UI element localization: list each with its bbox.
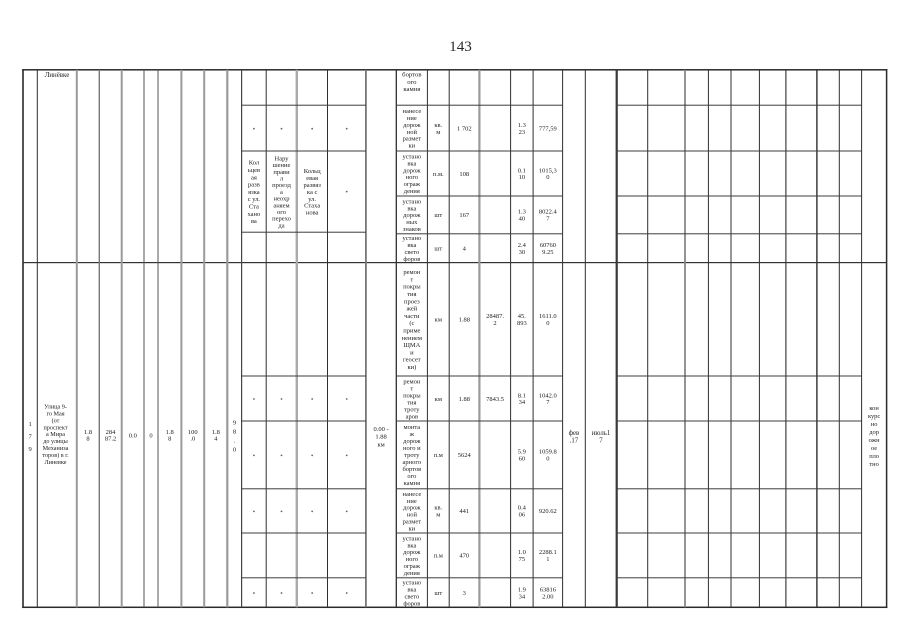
svg-text:4: 4 — [463, 245, 467, 252]
svg-text:108: 108 — [459, 171, 469, 178]
svg-text:0.406: 0.406 — [518, 505, 527, 519]
svg-text:470: 470 — [459, 553, 469, 560]
svg-text:1.340: 1.340 — [518, 209, 526, 223]
svg-text:установкадорожногоограждения: установкадорожногоограждения — [403, 535, 422, 577]
svg-text:ремонтпокрытиятротуаров: ремонтпокрытиятротуаров — [403, 378, 421, 420]
svg-text:28487.2: 28487.2 — [105, 429, 116, 443]
svg-text:0.0: 0.0 — [129, 432, 137, 439]
svg-text:шт: шт — [434, 212, 442, 219]
svg-text:45.893: 45.893 — [517, 313, 527, 327]
svg-text:7843.5: 7843.5 — [486, 396, 504, 403]
svg-text:Кольцеваяразвязкас ул.Стаханов: Кольцеваяразвязкас ул.Стаханова — [248, 160, 261, 225]
svg-text:Нарушениеправилпроезданеохраня: Нарушениеправилпроезданеохраняемогоперех… — [272, 155, 291, 229]
svg-text:1042.07: 1042.07 — [539, 392, 557, 406]
svg-text:шт: шт — [434, 590, 442, 597]
svg-text:8.134: 8.134 — [518, 392, 526, 406]
svg-text:0.110: 0.110 — [518, 167, 526, 181]
svg-text:км: км — [435, 317, 442, 324]
svg-text:1015,30: 1015,30 — [539, 167, 557, 181]
svg-text:установкасветофоров: установкасветофоров — [403, 235, 422, 263]
svg-text:Линёвке: Линёвке — [45, 72, 70, 79]
svg-text:кв.м: кв.м — [434, 505, 442, 519]
svg-text:2288.11: 2288.11 — [539, 549, 557, 563]
svg-text:1.075: 1.075 — [518, 549, 526, 563]
svg-text:1059.80: 1059.80 — [539, 449, 557, 463]
svg-text:шт: шт — [434, 245, 442, 252]
svg-text:143: 143 — [449, 38, 472, 55]
svg-text:км: км — [435, 396, 442, 403]
svg-text:179: 179 — [29, 421, 33, 453]
svg-text:установкадорожныхзнаков: установкадорожныхзнаков — [403, 198, 422, 233]
svg-text:167: 167 — [459, 212, 470, 219]
svg-text:1611.00: 1611.00 — [539, 313, 557, 327]
svg-text:1.88: 1.88 — [166, 429, 174, 443]
svg-text:777,59: 777,59 — [539, 125, 557, 132]
svg-text:1.88: 1.88 — [459, 317, 470, 324]
svg-text:июль17: июль17 — [592, 430, 610, 445]
svg-text:1 702: 1 702 — [457, 125, 472, 132]
svg-text:нанесениедорожнойразметки: нанесениедорожнойразметки — [402, 491, 421, 532]
svg-text:конкурснодорожноеплотно: конкурснодорожноеплотно — [868, 405, 880, 468]
svg-text:кв.м: кв.м — [434, 122, 442, 136]
svg-text:установкадорожногоограждения: установкадорожногоограждения — [403, 154, 422, 196]
svg-text:Кольцеваяразвязка сул.Стаханов: Кольцеваяразвязка сул.Стаханова — [304, 168, 322, 216]
svg-text:100.0: 100.0 — [188, 429, 198, 443]
svg-text:установкасветофоров: установкасветофоров — [403, 579, 422, 607]
svg-text:920.62: 920.62 — [539, 508, 557, 515]
svg-text:нанесениедорожнойразметки: нанесениедорожнойразметки — [402, 108, 421, 149]
svg-text:441: 441 — [459, 508, 469, 515]
svg-text:бортовогокамня: бортовогокамня — [402, 71, 421, 93]
svg-text:5.960: 5.960 — [518, 449, 526, 463]
svg-text:ремонтпокрытияпроезжейчасти(сп: ремонтпокрытияпроезжейчасти(сприменением… — [402, 269, 422, 371]
svg-text:Улица 9-го Мая(отпроспекта Мир: Улица 9-го Мая(отпроспекта Мирадо улицыМ… — [42, 404, 69, 466]
svg-text:1.88: 1.88 — [84, 429, 92, 443]
svg-text:п.м.: п.м. — [433, 171, 444, 178]
svg-text:8022.47: 8022.47 — [539, 209, 558, 223]
svg-text:п.м: п.м — [434, 553, 443, 560]
svg-text:28487.2: 28487.2 — [486, 313, 504, 327]
svg-text:0: 0 — [149, 432, 152, 439]
svg-text:фев.17: фев.17 — [569, 430, 580, 445]
svg-text:1.84: 1.84 — [212, 429, 220, 443]
svg-text:98.0: 98.0 — [233, 419, 236, 453]
svg-text:1.934: 1.934 — [518, 586, 526, 600]
svg-text:3: 3 — [463, 590, 466, 597]
svg-text:0.00 -1.88км: 0.00 -1.88км — [374, 426, 389, 449]
svg-text:монтаждорожного итротуарногобо: монтаждорожного итротуарногобортовогокам… — [402, 424, 421, 487]
svg-text:638162.00: 638162.00 — [540, 586, 557, 600]
svg-text:1.88: 1.88 — [459, 396, 470, 403]
svg-text:5624: 5624 — [458, 452, 472, 459]
svg-text:2.430: 2.430 — [518, 242, 527, 256]
svg-text:1.323: 1.323 — [518, 122, 526, 136]
svg-text:607609.25: 607609.25 — [540, 242, 556, 256]
svg-text:п.м: п.м — [434, 452, 443, 459]
